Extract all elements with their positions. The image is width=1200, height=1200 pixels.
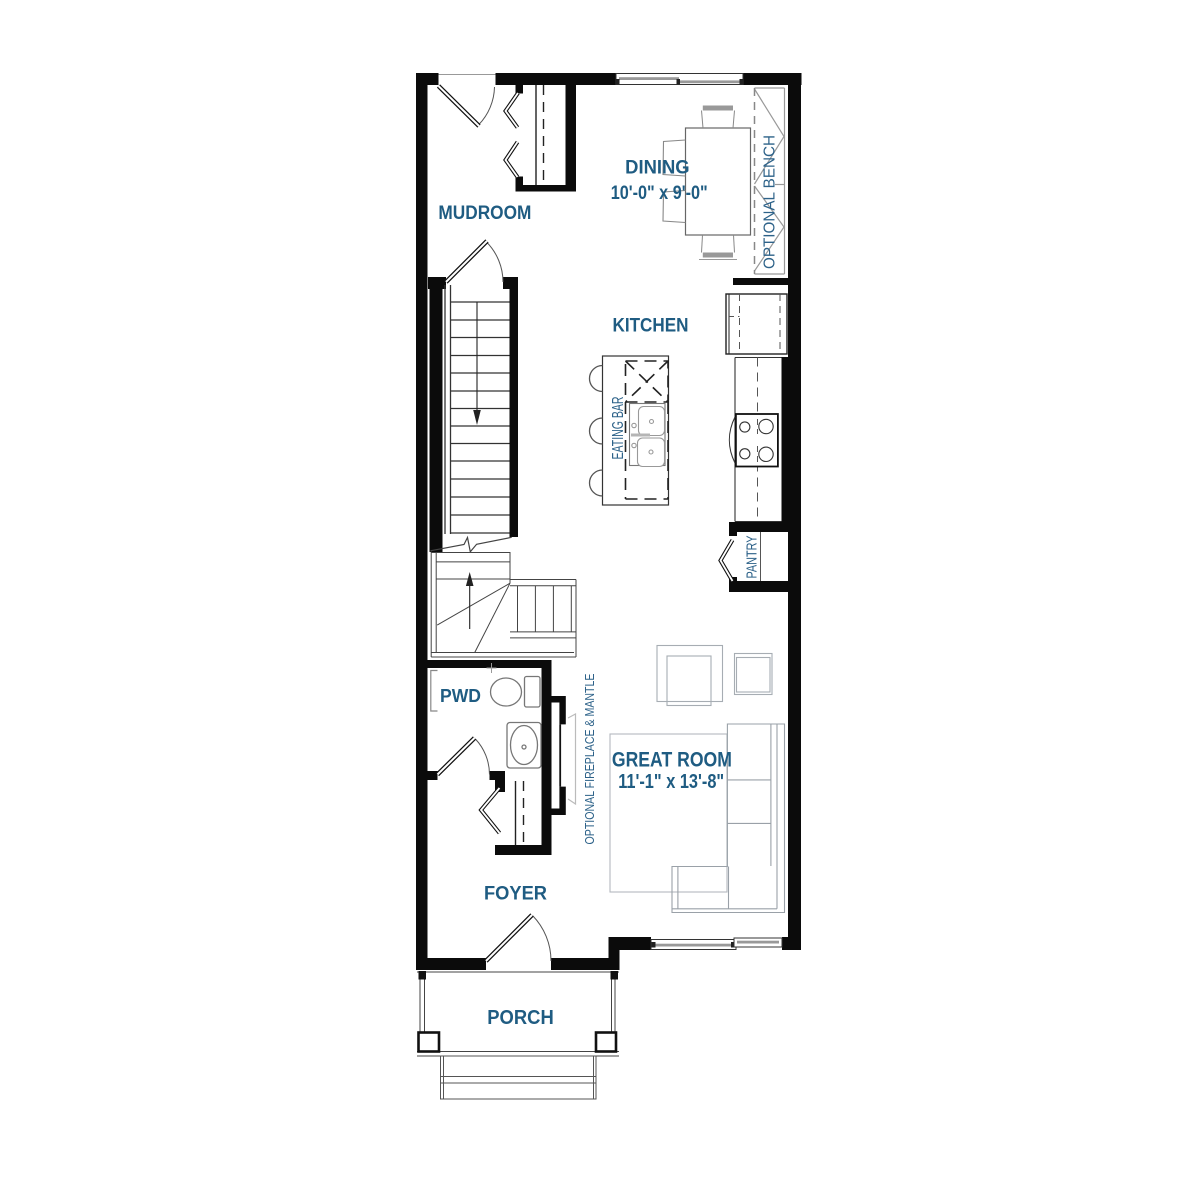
svg-text:DINING: DINING [625,157,690,179]
svg-text:PORCH: PORCH [487,1007,554,1029]
svg-text:10'-0" x 9'-0": 10'-0" x 9'-0" [611,182,708,204]
svg-text:OPTIONAL FIREPLACE & MANTLE: OPTIONAL FIREPLACE & MANTLE [582,673,597,844]
svg-text:11'-1" x 13'-8": 11'-1" x 13'-8" [618,771,724,793]
svg-text:OPTIONAL BENCH: OPTIONAL BENCH [762,135,779,269]
svg-text:MUDROOM: MUDROOM [438,203,531,224]
svg-text:KITCHEN: KITCHEN [613,315,689,337]
svg-text:GREAT ROOM: GREAT ROOM [612,749,732,772]
svg-text:FOYER: FOYER [484,883,547,905]
svg-text:PANTRY: PANTRY [744,536,761,579]
svg-text:EATING BAR: EATING BAR [610,397,627,460]
svg-text:PWD: PWD [440,685,481,706]
